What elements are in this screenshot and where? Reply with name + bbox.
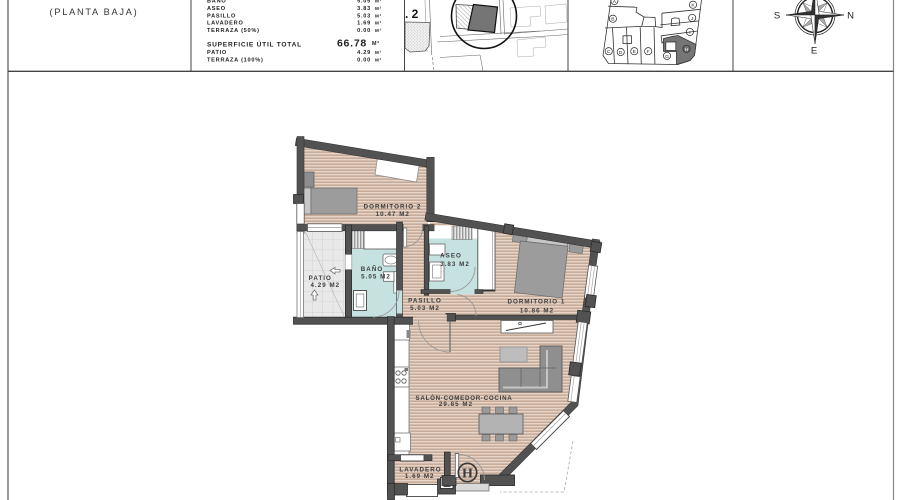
svg-text:TERRAZA (100%): TERRAZA (100%)	[207, 58, 264, 64]
svg-text:5.03: 5.03	[357, 13, 371, 19]
svg-text:M²: M²	[375, 13, 382, 18]
svg-text:D: D	[619, 50, 623, 56]
svg-text:SUPERFICIE ÚTIL TOTAL: SUPERFICIE ÚTIL TOTAL	[207, 40, 302, 49]
svg-text:M²: M²	[375, 21, 382, 26]
svg-text:3.83 M2: 3.83 M2	[440, 261, 470, 268]
svg-text:S: S	[774, 11, 780, 22]
svg-text:DORMITORIO 2: DORMITORIO 2	[364, 203, 422, 210]
svg-text:M²: M²	[375, 50, 382, 55]
svg-text:H: H	[685, 47, 689, 53]
svg-text:C: C	[607, 49, 611, 55]
svg-text:4.29: 4.29	[357, 50, 371, 56]
svg-text:N: N	[847, 11, 854, 22]
svg-text:66.78: 66.78	[337, 38, 367, 50]
svg-text:PASILLO: PASILLO	[207, 13, 236, 19]
svg-text:(PLANTA BAJA): (PLANTA BAJA)	[50, 7, 139, 17]
svg-text:BAÑO: BAÑO	[361, 266, 383, 273]
svg-text:10.86 M2: 10.86 M2	[520, 308, 554, 315]
svg-text:F: F	[647, 49, 650, 55]
svg-text:1.69: 1.69	[357, 21, 371, 27]
svg-text:. 2: . 2	[405, 7, 419, 21]
svg-text:I: I	[689, 30, 690, 36]
svg-text:E: E	[811, 46, 817, 57]
svg-text:LAVADERO: LAVADERO	[207, 21, 244, 27]
svg-text:BAÑO: BAÑO	[207, 0, 226, 5]
svg-text:3.83: 3.83	[357, 6, 371, 12]
svg-text:M²: M²	[375, 28, 382, 33]
svg-text:1.69 M2: 1.69 M2	[405, 473, 435, 480]
svg-text:M²: M²	[375, 6, 382, 11]
svg-text:29.85 M2: 29.85 M2	[439, 401, 473, 408]
svg-text:DORMITORIO 1: DORMITORIO 1	[507, 299, 565, 306]
svg-text:G: G	[665, 54, 669, 60]
svg-text:5.05: 5.05	[357, 0, 371, 5]
svg-text:PATIO: PATIO	[207, 50, 227, 56]
svg-text:ASEO: ASEO	[440, 253, 462, 260]
svg-text:M²: M²	[372, 41, 380, 47]
svg-text:4.29 M2: 4.29 M2	[310, 282, 340, 289]
svg-text:ASEO: ASEO	[207, 6, 226, 12]
svg-text:M²: M²	[375, 58, 382, 63]
svg-text:10.47 M2: 10.47 M2	[376, 211, 410, 218]
svg-text:PATIO: PATIO	[309, 275, 332, 282]
svg-text:B: B	[611, 17, 614, 23]
svg-text:5.05 M2: 5.05 M2	[361, 274, 391, 281]
svg-text:5.03 M2: 5.03 M2	[410, 305, 440, 312]
svg-text:H: H	[462, 467, 473, 482]
svg-text:PASILLO: PASILLO	[408, 298, 442, 305]
svg-text:TERRAZA (50%): TERRAZA (50%)	[207, 28, 260, 34]
svg-text:0.00: 0.00	[357, 58, 371, 64]
svg-text:0.00: 0.00	[357, 28, 371, 34]
svg-text:M²: M²	[375, 0, 382, 4]
